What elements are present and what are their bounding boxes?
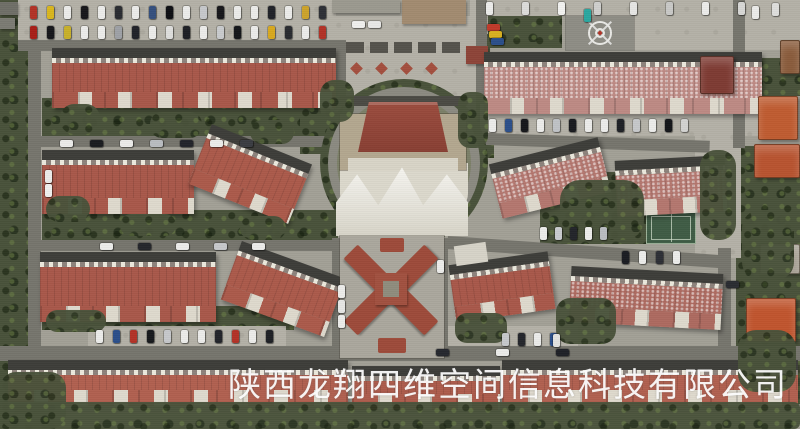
car	[81, 26, 88, 39]
car	[617, 119, 624, 132]
car	[266, 330, 273, 343]
car	[64, 6, 71, 19]
car	[437, 260, 444, 273]
car	[570, 227, 577, 240]
car	[166, 6, 173, 19]
car	[180, 140, 193, 147]
car	[215, 330, 222, 343]
car	[210, 140, 223, 147]
car	[489, 31, 502, 38]
car	[268, 26, 275, 39]
car	[217, 6, 224, 19]
car	[319, 26, 326, 39]
car	[338, 300, 345, 313]
road	[41, 240, 341, 251]
aerial-photo: 陕西龙翔四维空间信息科技有限公司	[0, 0, 800, 429]
car	[30, 26, 37, 39]
tree-clump	[458, 92, 488, 148]
car	[772, 3, 779, 16]
car	[302, 26, 309, 39]
roof-north-strip	[40, 252, 216, 262]
car	[702, 2, 709, 15]
clubhouse-roof	[358, 102, 448, 152]
car	[726, 281, 739, 288]
car	[556, 349, 569, 356]
tree-clump	[0, 372, 66, 429]
villa-building	[758, 96, 798, 140]
tree-clump	[700, 150, 736, 240]
car	[47, 6, 54, 19]
ornate-wing-roof	[380, 238, 404, 252]
car	[183, 26, 190, 39]
car	[130, 330, 137, 343]
car	[518, 333, 525, 346]
car	[665, 119, 672, 132]
car	[649, 119, 656, 132]
car	[436, 349, 449, 356]
car	[553, 119, 560, 132]
tree-clump	[455, 313, 507, 343]
car	[132, 26, 139, 39]
ornate-wing-roof	[378, 338, 406, 353]
car	[249, 330, 256, 343]
roof-main	[42, 165, 194, 198]
car	[234, 26, 241, 39]
car	[555, 227, 562, 240]
car	[338, 285, 345, 298]
car	[594, 2, 601, 15]
car	[138, 243, 151, 250]
car	[251, 6, 258, 19]
car	[60, 140, 73, 147]
car	[521, 119, 528, 132]
apartment-row-building	[52, 48, 336, 108]
roof-north-strip	[42, 150, 194, 160]
clubhouse-terrace	[348, 158, 458, 171]
roof-gable-band	[484, 98, 762, 114]
car	[115, 26, 122, 39]
car	[491, 38, 504, 45]
flat-roof-building	[402, 0, 466, 24]
car	[96, 330, 103, 343]
car	[113, 330, 120, 343]
tree-clump	[120, 214, 176, 236]
ornate-courtyard	[383, 281, 399, 297]
car	[183, 6, 190, 19]
tree-clump	[46, 310, 106, 332]
car	[522, 2, 529, 15]
car	[338, 315, 345, 328]
tree-clump	[0, 402, 800, 429]
car	[319, 6, 326, 19]
car	[496, 349, 509, 356]
car	[166, 26, 173, 39]
car	[214, 243, 227, 250]
tree-clump	[556, 298, 616, 344]
car	[622, 251, 629, 264]
car	[232, 330, 239, 343]
car	[200, 6, 207, 19]
villa-building	[754, 144, 800, 178]
car	[673, 251, 680, 264]
car	[487, 24, 500, 31]
car	[98, 26, 105, 39]
car	[64, 26, 71, 39]
roof-north-strip	[52, 48, 336, 58]
car	[540, 227, 547, 240]
flat-roof-building	[332, 0, 400, 13]
car	[98, 6, 105, 19]
small-building	[0, 2, 18, 15]
car	[633, 119, 640, 132]
car	[200, 26, 207, 39]
helipad-center-dot	[598, 31, 602, 35]
car	[217, 26, 224, 39]
car	[164, 330, 171, 343]
car	[302, 6, 309, 19]
car	[90, 140, 103, 147]
car	[45, 170, 52, 183]
car	[251, 26, 258, 39]
roof-main	[52, 63, 336, 92]
car	[630, 2, 637, 15]
car	[585, 227, 592, 240]
tree-clump	[240, 216, 286, 240]
car	[234, 6, 241, 19]
car	[601, 119, 608, 132]
car	[198, 330, 205, 343]
car	[149, 6, 156, 19]
car	[558, 2, 565, 15]
car	[150, 140, 163, 147]
car	[30, 6, 37, 19]
car	[47, 26, 54, 39]
car	[285, 26, 292, 39]
car	[120, 140, 133, 147]
villa-building	[780, 40, 800, 74]
car	[738, 2, 745, 15]
tree-clump	[320, 80, 354, 122]
car	[537, 119, 544, 132]
car	[81, 6, 88, 19]
car	[352, 21, 365, 28]
entrance-canopy	[346, 42, 462, 53]
car	[115, 6, 122, 19]
car	[639, 251, 646, 264]
car	[268, 6, 275, 19]
car	[656, 251, 663, 264]
tree-clump	[742, 210, 794, 280]
car	[553, 334, 560, 347]
tree-clump	[250, 120, 294, 144]
car	[681, 119, 688, 132]
car	[534, 333, 541, 346]
car	[100, 243, 113, 250]
car	[489, 119, 496, 132]
car	[181, 330, 188, 343]
tree-clump	[60, 104, 100, 134]
car	[149, 26, 156, 39]
car	[147, 330, 154, 343]
watermark-text: 陕西龙翔四维空间信息科技有限公司	[228, 358, 788, 406]
tree-clump	[46, 196, 90, 222]
car	[45, 184, 52, 197]
car	[240, 140, 253, 147]
tree-clump	[150, 112, 202, 138]
car	[752, 6, 759, 19]
car	[486, 2, 493, 15]
car	[252, 243, 265, 250]
car	[505, 119, 512, 132]
car	[666, 2, 673, 15]
car	[176, 243, 189, 250]
roof-main	[40, 267, 216, 306]
roof-gable-band	[52, 92, 336, 108]
car	[368, 21, 381, 28]
car	[584, 9, 591, 22]
court-midline	[671, 214, 672, 242]
membrane-tent-canopy	[336, 166, 468, 236]
villa-building	[700, 56, 734, 94]
car	[285, 6, 292, 19]
car	[132, 6, 139, 19]
car	[502, 333, 509, 346]
car	[585, 119, 592, 132]
car	[600, 227, 607, 240]
small-building	[0, 18, 15, 29]
car	[569, 119, 576, 132]
